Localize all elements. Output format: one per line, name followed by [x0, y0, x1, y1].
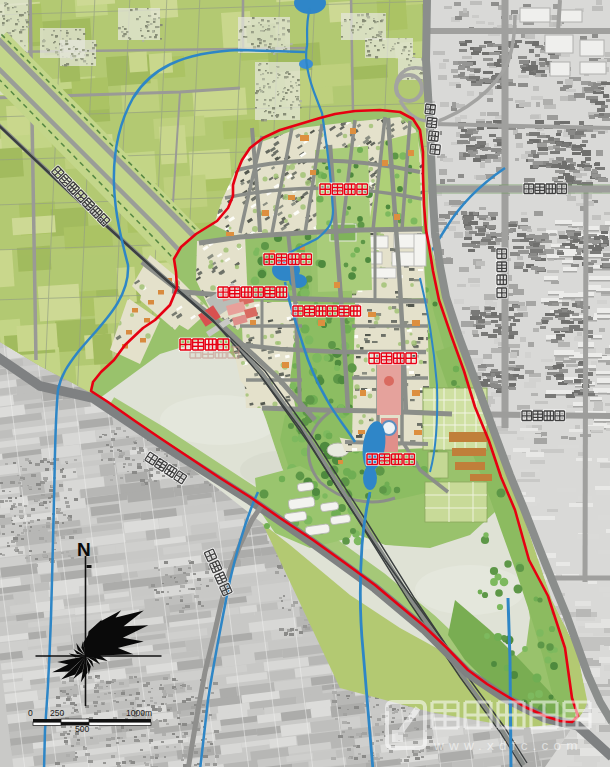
svg-text:0: 0 — [28, 708, 33, 718]
svg-text:500: 500 — [75, 724, 89, 734]
svg-text:250: 250 — [50, 708, 64, 718]
svg-text:N: N — [77, 539, 91, 560]
svg-text:1000m: 1000m — [126, 708, 152, 718]
svg-text:www.xdfc.com: www.xdfc.com — [433, 738, 583, 753]
